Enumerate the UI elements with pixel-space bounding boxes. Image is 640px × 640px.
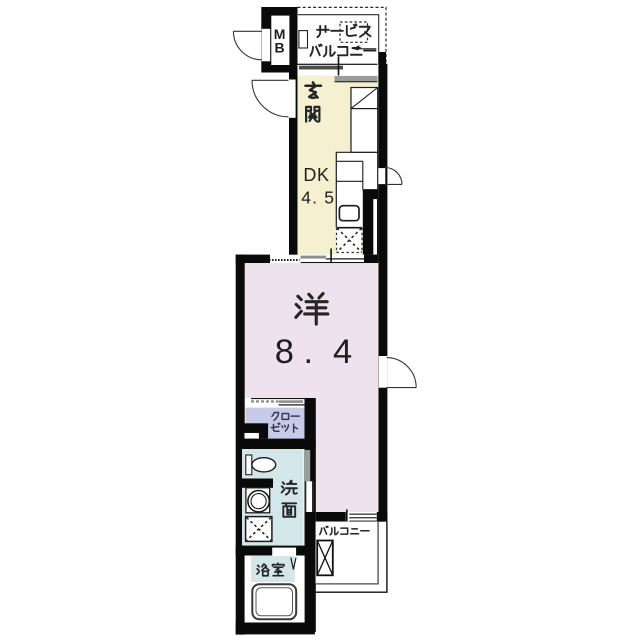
- svg-text:DK: DK: [303, 165, 329, 185]
- svg-text:B: B: [275, 40, 285, 56]
- svg-text:.: .: [304, 333, 314, 371]
- svg-text:8: 8: [275, 333, 294, 371]
- svg-text:4: 4: [333, 333, 352, 371]
- svg-text:4. 5: 4. 5: [301, 188, 335, 208]
